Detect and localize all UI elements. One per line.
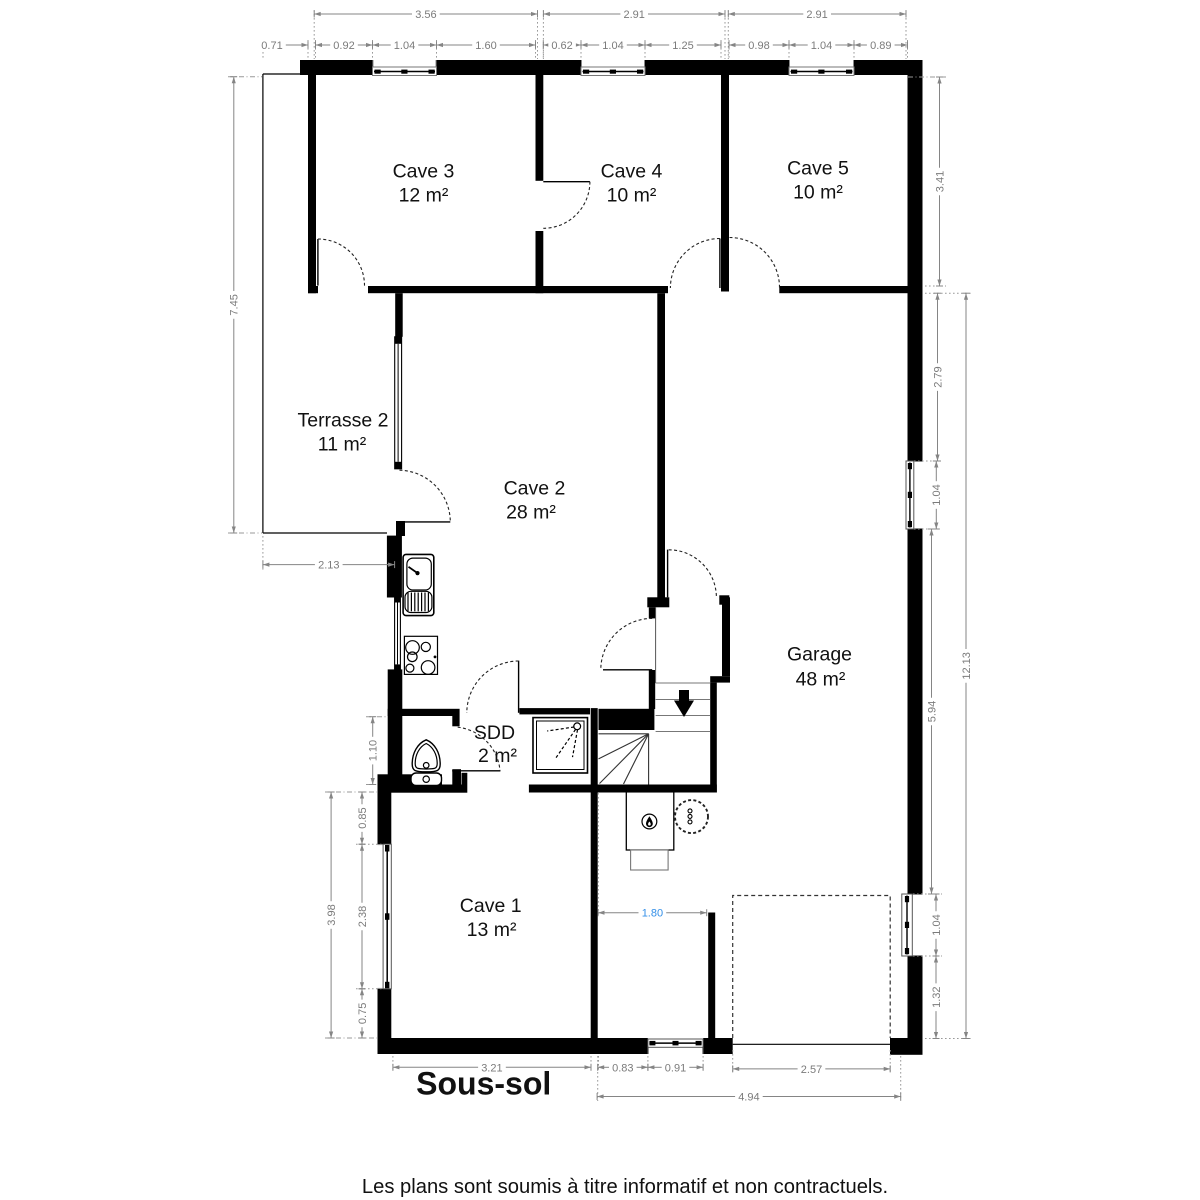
svg-text:28 m²: 28 m² [506,502,556,524]
svg-text:1.60: 1.60 [475,40,496,52]
svg-text:1.32: 1.32 [931,986,943,1007]
svg-text:4.94: 4.94 [738,1092,759,1104]
svg-text:1.04: 1.04 [394,40,415,52]
svg-text:10 m²: 10 m² [793,182,843,204]
svg-text:Terrasse 2: Terrasse 2 [297,410,388,432]
svg-text:1.25: 1.25 [672,40,693,52]
svg-text:2.38: 2.38 [357,906,369,927]
svg-text:Sous-sol: Sous-sol [416,1066,551,1102]
svg-text:13 m²: 13 m² [467,919,517,941]
svg-text:0.89: 0.89 [870,40,891,52]
svg-text:Cave 2: Cave 2 [504,478,566,500]
svg-text:2.91: 2.91 [623,9,644,21]
svg-text:0.85: 0.85 [357,807,369,828]
svg-text:2.13: 2.13 [318,560,339,572]
svg-text:Cave 4: Cave 4 [601,161,663,183]
svg-text:Les plans sont soumis à titre: Les plans sont soumis à titre informatif… [362,1176,888,1198]
svg-text:12.13: 12.13 [961,652,973,680]
svg-text:5.94: 5.94 [926,701,938,722]
svg-text:0.75: 0.75 [357,1003,369,1024]
svg-text:3.98: 3.98 [326,904,338,925]
svg-text:48 m²: 48 m² [796,669,846,691]
svg-text:1.10: 1.10 [368,740,380,761]
svg-text:1.04: 1.04 [602,40,623,52]
svg-text:Cave 1: Cave 1 [460,895,522,917]
svg-text:2.91: 2.91 [806,9,827,21]
svg-text:2.79: 2.79 [932,366,944,387]
svg-text:Garage: Garage [787,644,852,666]
svg-text:0.71: 0.71 [261,40,282,52]
svg-text:2 m²: 2 m² [478,745,518,767]
svg-text:Cave 5: Cave 5 [787,158,849,180]
svg-text:0.92: 0.92 [333,40,354,52]
svg-text:1.80: 1.80 [642,908,663,920]
svg-text:0.62: 0.62 [551,40,572,52]
svg-text:3.56: 3.56 [415,9,436,21]
svg-text:1.04: 1.04 [811,40,832,52]
svg-text:0.98: 0.98 [748,40,769,52]
svg-text:0.91: 0.91 [665,1062,686,1074]
svg-text:11 m²: 11 m² [318,434,367,456]
svg-text:1.04: 1.04 [931,484,943,505]
svg-text:0.83: 0.83 [612,1062,633,1074]
svg-text:SDD: SDD [474,722,515,744]
svg-text:10 m²: 10 m² [607,185,657,207]
svg-text:3.41: 3.41 [934,171,946,192]
svg-text:12 m²: 12 m² [399,185,449,207]
svg-text:Cave 3: Cave 3 [393,161,455,183]
svg-text:2.57: 2.57 [801,1064,822,1076]
svg-text:1.04: 1.04 [931,914,943,935]
svg-text:7.45: 7.45 [229,294,241,315]
